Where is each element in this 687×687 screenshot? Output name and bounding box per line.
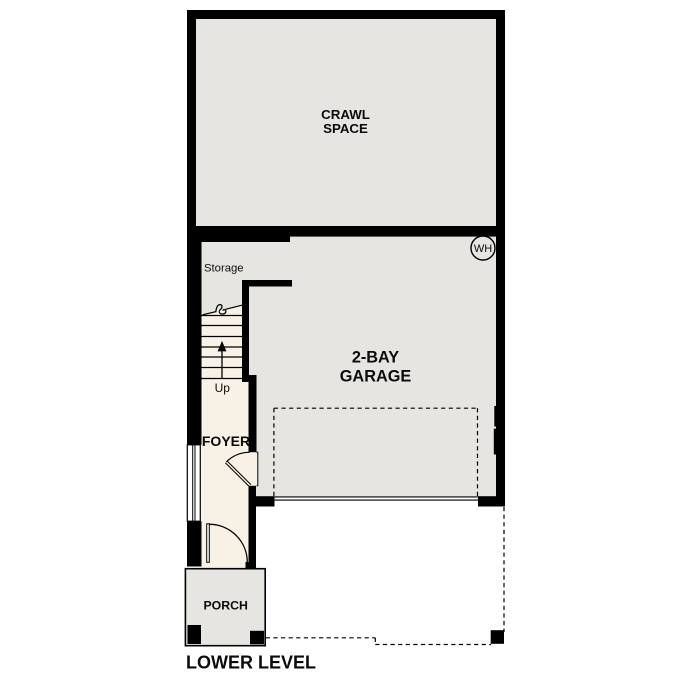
- svg-text:CRAWL: CRAWL: [321, 107, 370, 122]
- svg-text:WH: WH: [474, 243, 492, 255]
- svg-text:SPACE: SPACE: [323, 121, 368, 136]
- svg-text:Storage: Storage: [204, 263, 244, 275]
- svg-text:FOYER: FOYER: [202, 433, 250, 449]
- svg-text:PORCH: PORCH: [203, 599, 248, 613]
- svg-text:2-BAY: 2-BAY: [352, 349, 399, 367]
- svg-text:GARAGE: GARAGE: [340, 368, 412, 386]
- svg-text:LOWER LEVEL: LOWER LEVEL: [186, 653, 316, 673]
- svg-text:Up: Up: [215, 381, 231, 395]
